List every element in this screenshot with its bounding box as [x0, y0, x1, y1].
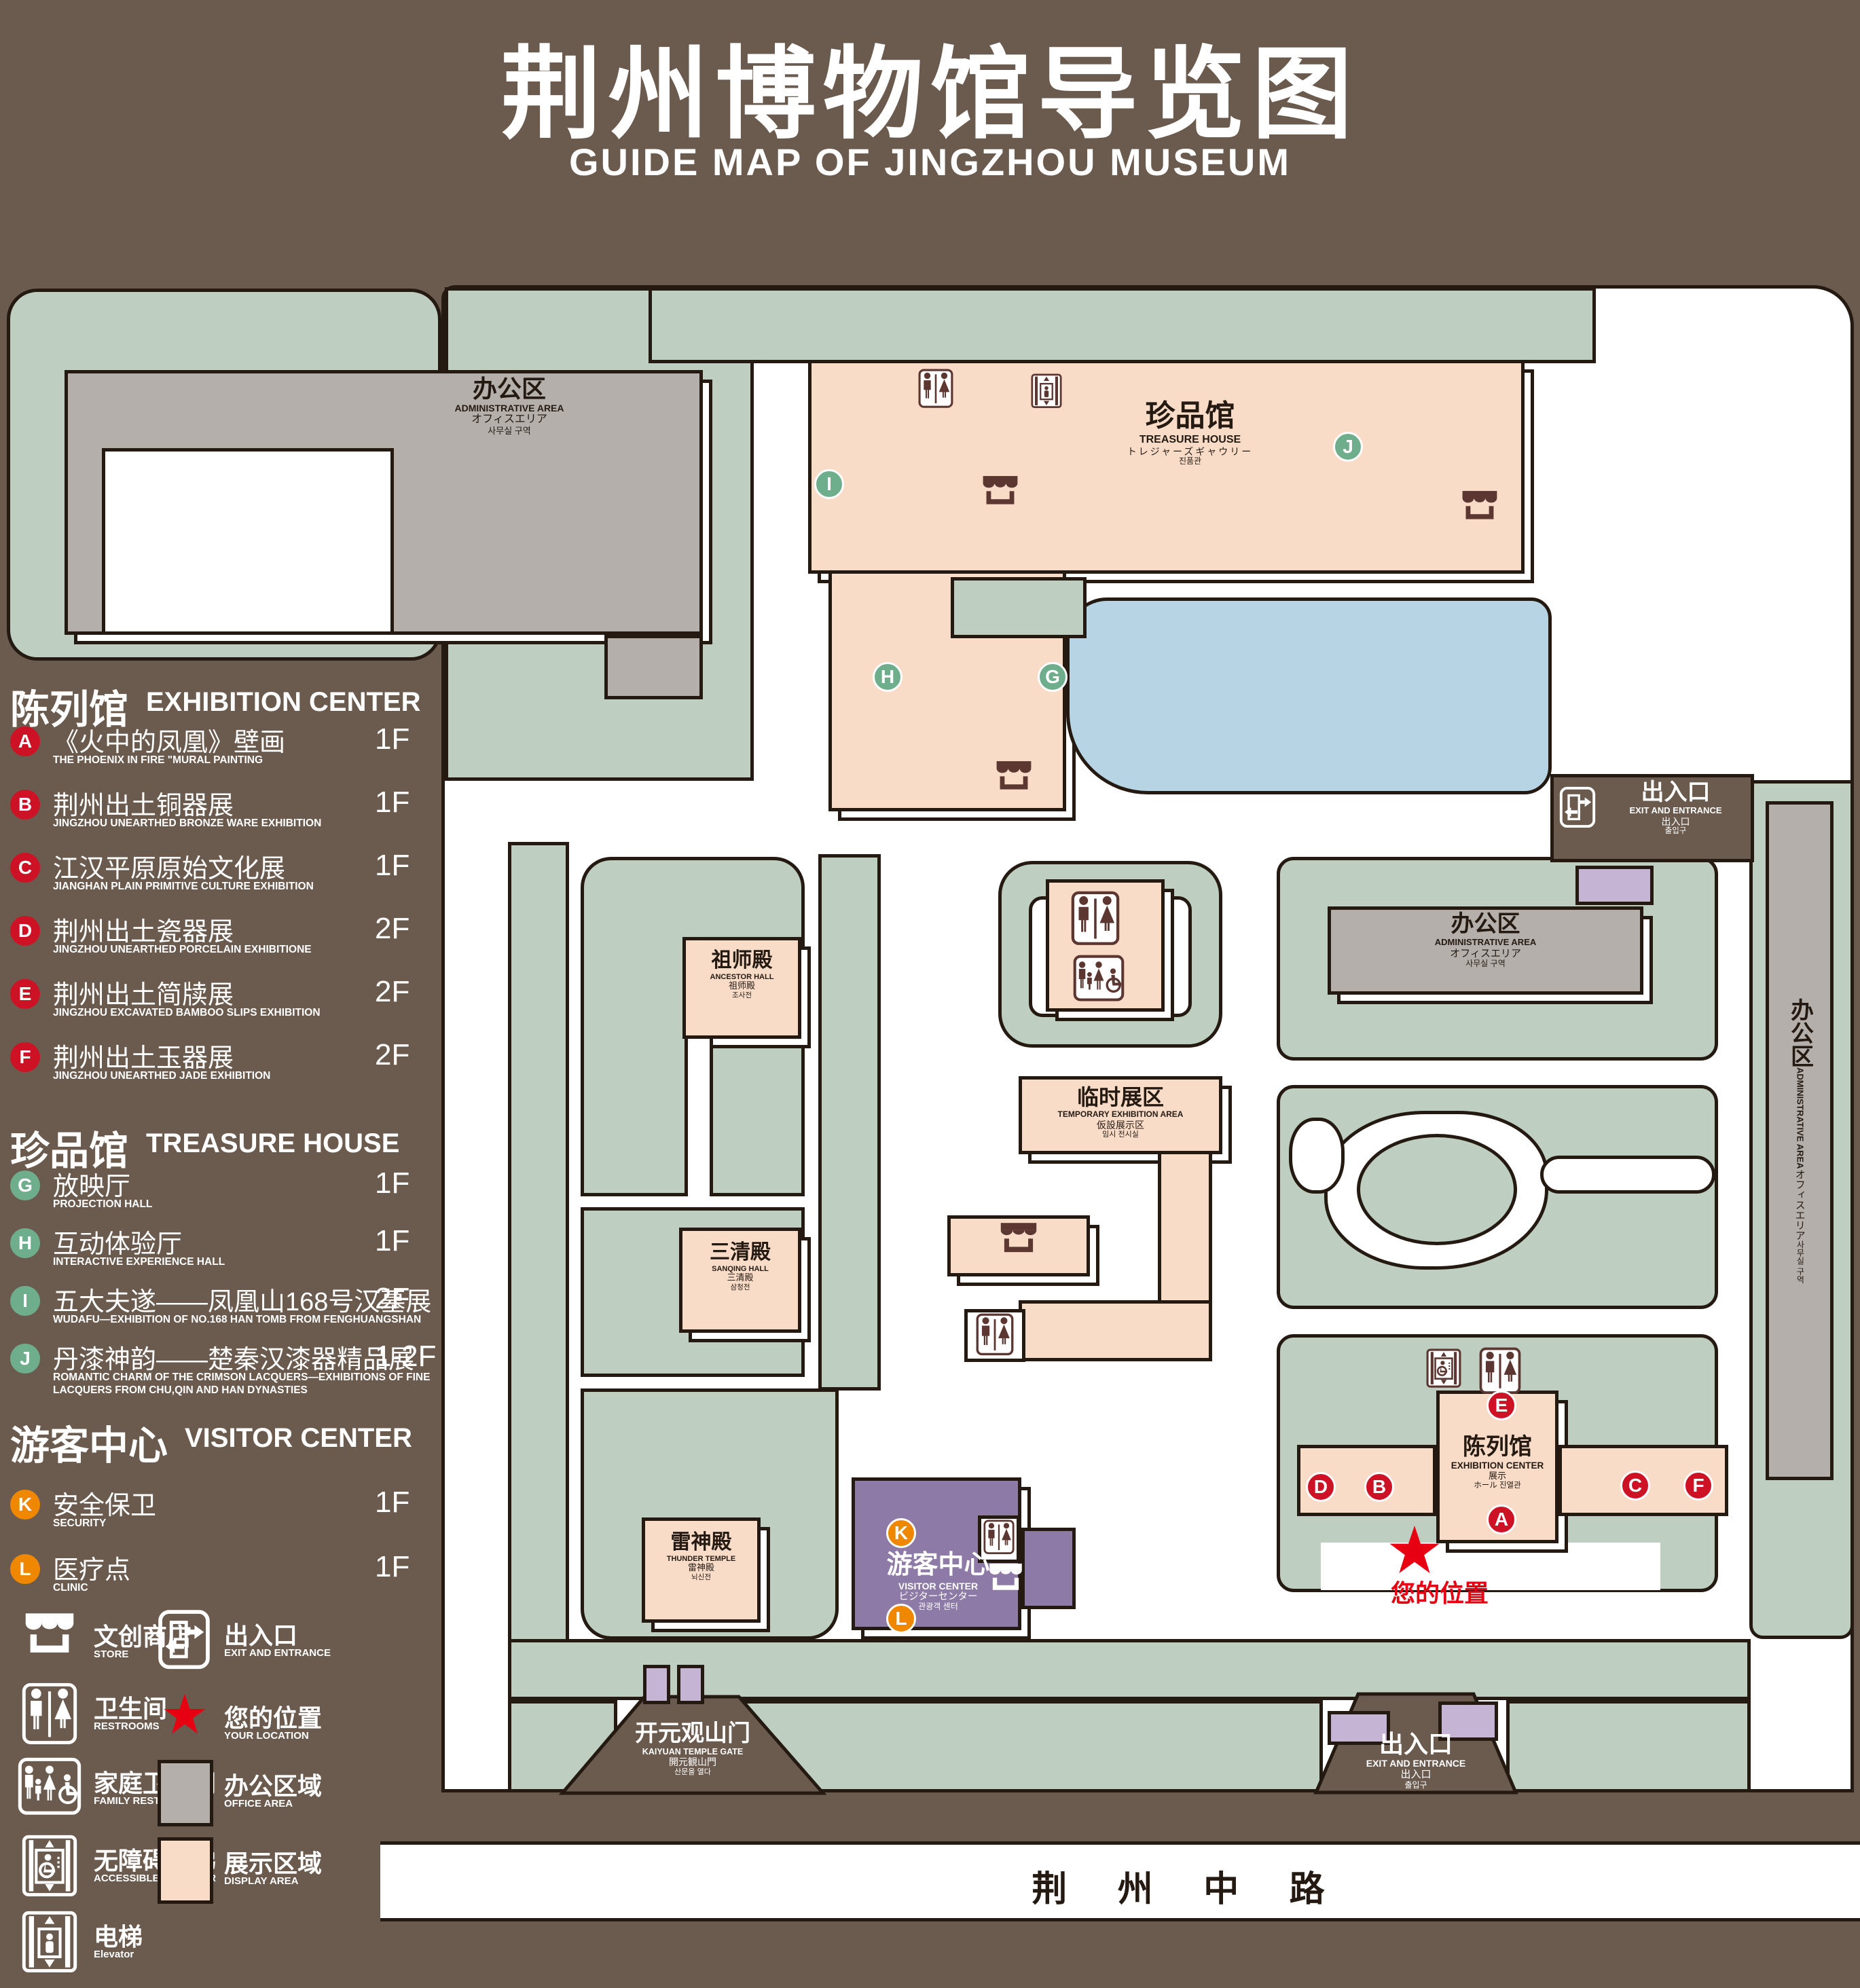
temporary-exhibition-label: 临时展区TEMPORARY EXHIBITION AREA仮設展示区임시 전시실 — [1022, 1085, 1219, 1139]
store-icon-th3 — [993, 759, 1035, 807]
exhibition-center-label-zh: 陈列馆 — [1436, 1434, 1558, 1460]
lavender-building-ne — [1575, 866, 1654, 905]
gate-pillar-left — [643, 1665, 670, 1704]
office-east-label-en: ADMINISTRATIVE AREA — [1328, 938, 1643, 948]
legend-item-floor-C: 1F — [375, 849, 450, 883]
legend-item-floor-L: 1F — [375, 1550, 450, 1584]
map-badge-C: C — [1620, 1471, 1650, 1501]
exit-south-label: 出入口EXIT AND ENTRANCE出入口출입구 — [1331, 1730, 1501, 1790]
legend-badge-K: K — [10, 1490, 40, 1520]
family-restrooms-icon-ring — [1073, 955, 1125, 998]
store-icon-th2 — [1459, 489, 1501, 536]
treasure-house-label: 珍品馆TREASURE HOUSEトレジャーズギャウリー진품관 — [1019, 399, 1362, 466]
lawn-treasure-sliver — [951, 577, 1087, 638]
lawn-left-strip — [508, 842, 569, 1684]
lawn-treasure-top — [649, 287, 1596, 363]
office-east-label-zh: 办公区 — [1328, 911, 1643, 938]
map-badge-K: K — [886, 1518, 916, 1548]
map-badge-L: L — [886, 1604, 916, 1634]
office-northwest-label: 办公区ADMINISTRATIVE AREAオフィスエリア사무실 구역 — [377, 375, 642, 437]
legend-section-title-en-visitor-center: VISITOR CENTER — [185, 1423, 412, 1454]
legend-elevator-icon — [22, 1911, 77, 1978]
garden-inner-lawn — [1357, 1134, 1517, 1245]
legend-display-swatch-icon — [158, 1837, 213, 1904]
legend-item-zh-G: 放映厅 — [53, 1165, 130, 1202]
page-subtitle: GUIDE MAP OF JINGZHOU MUSEUM — [0, 140, 1860, 184]
legend-badge-L: L — [10, 1554, 40, 1584]
legend-item-zh-B: 荆州出土铜器展 — [53, 784, 234, 822]
legend-badge-I: I — [10, 1286, 40, 1316]
office-east-label-ko: 사무실 구역 — [1328, 959, 1643, 969]
map-badge-D: D — [1306, 1472, 1336, 1502]
temporary-exhibition-label-en: TEMPORARY EXHIBITION AREA — [1022, 1110, 1219, 1120]
map-badge-F: F — [1683, 1471, 1713, 1501]
legend-display-swatch-label-en: DISPLAY AREA — [224, 1875, 298, 1887]
sanqing-hall-label: 三清殿SANQING HALL三清殿삼청전 — [679, 1241, 801, 1291]
legend-section-title-en-exhibition-center: EXHIBITION CENTER — [146, 687, 420, 718]
lawn-below-exit-right — [1506, 1700, 1751, 1792]
thunder-temple-label-ko: 뇌신전 — [642, 1573, 761, 1581]
office-northwest-tab — [604, 635, 703, 699]
legend-location-label-en: YOUR LOCATION — [224, 1730, 309, 1742]
visitor-center-label-ko: 관광객 센터 — [858, 1602, 1018, 1612]
garden-path-arm — [1540, 1156, 1715, 1194]
exit-northeast-label-zh: 出入口 — [1596, 779, 1755, 806]
legend-exit-label-en: EXIT AND ENTRANCE — [224, 1647, 331, 1659]
legend-item-floor-D: 2F — [375, 912, 450, 946]
ancestor-courtyard-path — [685, 1039, 713, 1196]
thunder-temple-label-zh: 雷神殿 — [642, 1531, 761, 1555]
office-northwest-label-en: ADMINISTRATIVE AREA — [377, 403, 642, 413]
legend-store-icon — [20, 1610, 79, 1665]
store-icon-th1 — [979, 474, 1021, 521]
legend-section-title-en-treasure-house: TREASURE HOUSE — [146, 1128, 399, 1159]
treasure-house-label-en: TREASURE HOUSE — [1019, 434, 1362, 446]
legend-badge-G: G — [10, 1171, 40, 1200]
legend-item-floor-B: 1F — [375, 786, 450, 820]
exhibition-center-label-ja: 展示 — [1436, 1471, 1558, 1481]
legend-badge-A: A — [10, 726, 40, 756]
exhibition-center-label: 陈列馆EXHIBITION CENTER展示ホール 진열관 — [1436, 1434, 1558, 1490]
legend-item-floor-J: 1-2F — [375, 1340, 450, 1374]
legend-badge-D: D — [10, 916, 40, 946]
thunder-temple-label-ja: 雷神殿 — [642, 1563, 761, 1573]
legend-store-label-en: STORE — [94, 1649, 128, 1660]
legend-item-floor-K: 1F — [375, 1486, 450, 1520]
garden-path-small — [1289, 1118, 1345, 1194]
exit-northeast-label-en: EXIT AND ENTRANCE — [1596, 806, 1755, 816]
legend-restrooms-icon — [22, 1682, 77, 1748]
office-northwest-label-ko: 사무실 구역 — [377, 426, 642, 437]
legend-item-zh-E: 荆州出土简牍展 — [53, 974, 234, 1011]
legend-item-en-J: ROMANTIC CHARM OF THE CRIMSON LACQUERS—E… — [53, 1371, 447, 1397]
legend-restrooms-label-zh: 卫生间 — [94, 1689, 167, 1725]
exit-south-label-zh: 出入口 — [1331, 1730, 1501, 1758]
temporary-exhibition-label-ko: 임시 전시실 — [1022, 1130, 1219, 1139]
temporary-exhibition-label-ja: 仮設展示区 — [1022, 1120, 1219, 1130]
office-far-east-label-en: ADMINISTRATIVE AREA — [1795, 1067, 1805, 1169]
legend-badge-E: E — [10, 979, 40, 1009]
legend-item-zh-J: 丹漆神韵——楚秦汉漆器精品展 — [53, 1338, 414, 1376]
guide-map-poster: { "title": {"zh": "荆州博物馆导览图", "en": "GUI… — [0, 0, 1860, 1988]
exit-south-label-en: EXIT AND ENTRANCE — [1331, 1758, 1501, 1769]
map-badge-E: E — [1487, 1391, 1516, 1420]
gate-label-en: KAIYUAN TEMPLE GATE — [591, 1747, 795, 1756]
ancestor-hall-label-zh: 祖师殿 — [682, 949, 801, 973]
restrooms-icon-th — [918, 369, 953, 411]
visitor-center-wing — [1021, 1528, 1076, 1609]
restrooms-icon-small — [976, 1313, 1014, 1357]
visitor-center-label-en: VISITOR CENTER — [858, 1581, 1018, 1591]
legend-item-floor-F: 2F — [375, 1038, 450, 1072]
thunder-temple-label: 雷神殿THUNDER TEMPLE雷神殿뇌신전 — [642, 1531, 761, 1581]
legend-item-zh-H: 互动体验厅 — [53, 1223, 182, 1260]
temporary-exhibition-label-zh: 临时展区 — [1022, 1085, 1219, 1110]
treasure-house-label-ko: 진품관 — [1019, 457, 1362, 466]
legend-badge-J: J — [10, 1344, 40, 1374]
legend-accessible-elevator-icon — [22, 1835, 77, 1902]
legend-badge-F: F — [10, 1042, 40, 1072]
ancestor-hall-label-ja: 祖师殿 — [682, 981, 801, 991]
legend-item-floor-E: 2F — [375, 975, 450, 1009]
ancestor-hall-label: 祖师殿ANCESTOR HALL祖师殿조사전 — [682, 949, 801, 999]
legend-office-swatch-icon — [158, 1760, 213, 1826]
sanqing-hall-label-zh: 三清殿 — [679, 1241, 801, 1265]
legend-item-zh-C: 江汉平原原始文化展 — [53, 847, 285, 885]
exit-northeast-label-ja: 出入口 — [1596, 816, 1755, 827]
visitor-center-label: 游客中心VISITOR CENTERビジターセンター관광객 센터 — [858, 1551, 1018, 1612]
sanqing-hall-label-ko: 삼청전 — [679, 1283, 801, 1291]
map-badge-J: J — [1333, 432, 1363, 462]
office-far-east-label-ko: 사무실 구역 — [1795, 1240, 1804, 1283]
legend-location-icon — [163, 1692, 206, 1735]
exit-south-label-ja: 出入口 — [1331, 1769, 1501, 1780]
legend-section-title-zh-visitor-center: 游客中心 — [10, 1414, 168, 1471]
legend-item-zh-F: 荆州出土玉器展 — [53, 1037, 234, 1074]
legend-location-label-zh: 您的位置 — [224, 1699, 322, 1734]
legend-item-zh-D: 荆州出土瓷器展 — [53, 910, 234, 948]
store-icon-mid — [997, 1221, 1040, 1271]
ancestor-hall-label-ko: 조사전 — [682, 991, 801, 999]
lawn-mid-strip — [818, 854, 881, 1391]
legend-restrooms-label-en: RESTROOMS — [94, 1720, 160, 1732]
legend-family-restrooms-icon — [18, 1757, 81, 1817]
office-far-east-label: 办公区ADMINISTRATIVE AREAオフィスエリア사무실 구역 — [1766, 801, 1834, 1480]
legend-exit-icon — [158, 1609, 211, 1672]
exit-northeast-label-ko: 출입구 — [1596, 827, 1755, 836]
visitor-center-label-ja: ビジターセンター — [858, 1591, 1018, 1603]
exhibition-center-label-ko: ホール 진열관 — [1436, 1481, 1558, 1490]
legend-item-floor-A: 1F — [375, 722, 450, 756]
legend-item-floor-I: 2F — [375, 1282, 450, 1316]
office-east-label: 办公区ADMINISTRATIVE AREAオフィスエリア사무실 구역 — [1328, 911, 1643, 969]
treasure-house-label-ja: トレジャーズギャウリー — [1019, 446, 1362, 457]
legend-exit-label-zh: 出入口 — [224, 1616, 297, 1651]
gate-label-zh: 开元观山门 — [591, 1720, 795, 1747]
restrooms-icon-ring — [1071, 891, 1120, 948]
visitor-center-label-zh: 游客中心 — [858, 1551, 1018, 1581]
office-northwest-courtyard — [102, 448, 394, 635]
legend-badge-B: B — [10, 790, 40, 820]
legend-elevator-label-en: Elevator — [94, 1949, 134, 1960]
exit-icon-ne — [1559, 786, 1596, 831]
office-far-east-label-ja: オフィスエリア — [1793, 1169, 1805, 1240]
exit-south-label-ko: 출입구 — [1331, 1781, 1501, 1790]
office-east-label-ja: オフィスエリア — [1328, 948, 1643, 959]
your-location-label: 您的位置 — [1365, 1574, 1514, 1609]
your-location-star — [1389, 1524, 1440, 1574]
office-northwest-label-ja: オフィスエリア — [377, 413, 642, 426]
pond — [1066, 597, 1552, 794]
legend-display-swatch-label-zh: 展示区域 — [224, 1844, 322, 1879]
treasure-house-main — [808, 360, 1525, 574]
exhibition-center-label-en: EXHIBITION CENTER — [1436, 1460, 1558, 1471]
map-badge-A: A — [1487, 1505, 1516, 1534]
legend-item-zh-L: 医疗点 — [53, 1549, 130, 1586]
legend-item-floor-G: 1F — [375, 1166, 450, 1200]
legend-office-swatch-label-en: OFFICE AREA — [224, 1798, 293, 1809]
legend-elevator-label-zh: 电梯 — [94, 1917, 143, 1953]
exit-northeast-label: 出入口EXIT AND ENTRANCE出入口출입구 — [1596, 779, 1755, 836]
treasure-house-label-zh: 珍品馆 — [1019, 399, 1362, 434]
page-title: 荆州博物馆导览图 — [0, 12, 1860, 158]
legend-item-floor-H: 1F — [375, 1224, 450, 1258]
sanqing-hall-label-ja: 三清殿 — [679, 1273, 801, 1283]
elevator-icon-th — [1031, 373, 1062, 410]
map-badge-G: G — [1038, 662, 1068, 692]
legend-item-zh-K: 安全保卫 — [53, 1484, 156, 1522]
gate-label-ja: 開元観山門 — [591, 1756, 795, 1767]
restrooms-icon-ec — [1479, 1347, 1521, 1395]
road-label: 荆 州 中 路 — [971, 1860, 1406, 1911]
office-far-east-label-zh: 办公区 — [1786, 998, 1812, 1067]
legend-item-zh-A: 《火中的凤凰》壁画 — [53, 721, 285, 758]
legend-badge-C: C — [10, 853, 40, 883]
office-northwest-label-zh: 办公区 — [377, 375, 642, 403]
gate-label-ko: 산문을 열다 — [591, 1768, 795, 1777]
legend-badge-H: H — [10, 1228, 40, 1258]
gate-pillar-right — [677, 1665, 704, 1704]
legend-office-swatch-label-zh: 办公区域 — [224, 1767, 322, 1802]
map-badge-H: H — [873, 662, 902, 692]
temporary-exhibition-bottom — [1019, 1300, 1212, 1361]
map-badge-I: I — [814, 469, 844, 499]
map-badge-B: B — [1364, 1472, 1394, 1502]
accessible-elevator-icon-ec — [1426, 1348, 1461, 1392]
gate-label: 开元观山门KAIYUAN TEMPLE GATE開元観山門산문을 열다 — [591, 1720, 795, 1776]
